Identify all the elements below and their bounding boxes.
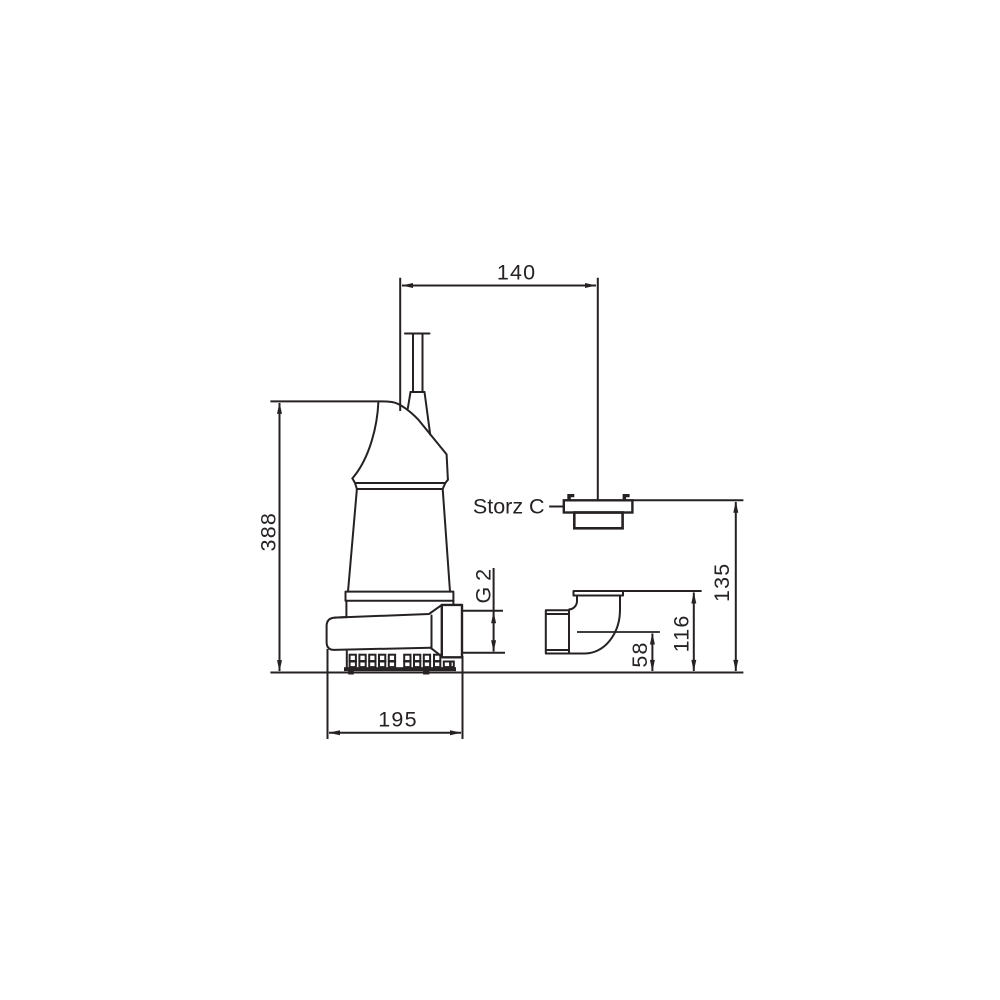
svg-text:116: 116 <box>670 614 694 652</box>
svg-text:Storz C: Storz C <box>473 495 545 519</box>
svg-text:135: 135 <box>710 563 734 602</box>
svg-text:388: 388 <box>256 512 280 551</box>
svg-text:140: 140 <box>497 260 536 284</box>
svg-text:195: 195 <box>378 707 417 731</box>
svg-text:G 2: G 2 <box>471 569 495 604</box>
svg-text:58: 58 <box>628 641 652 667</box>
